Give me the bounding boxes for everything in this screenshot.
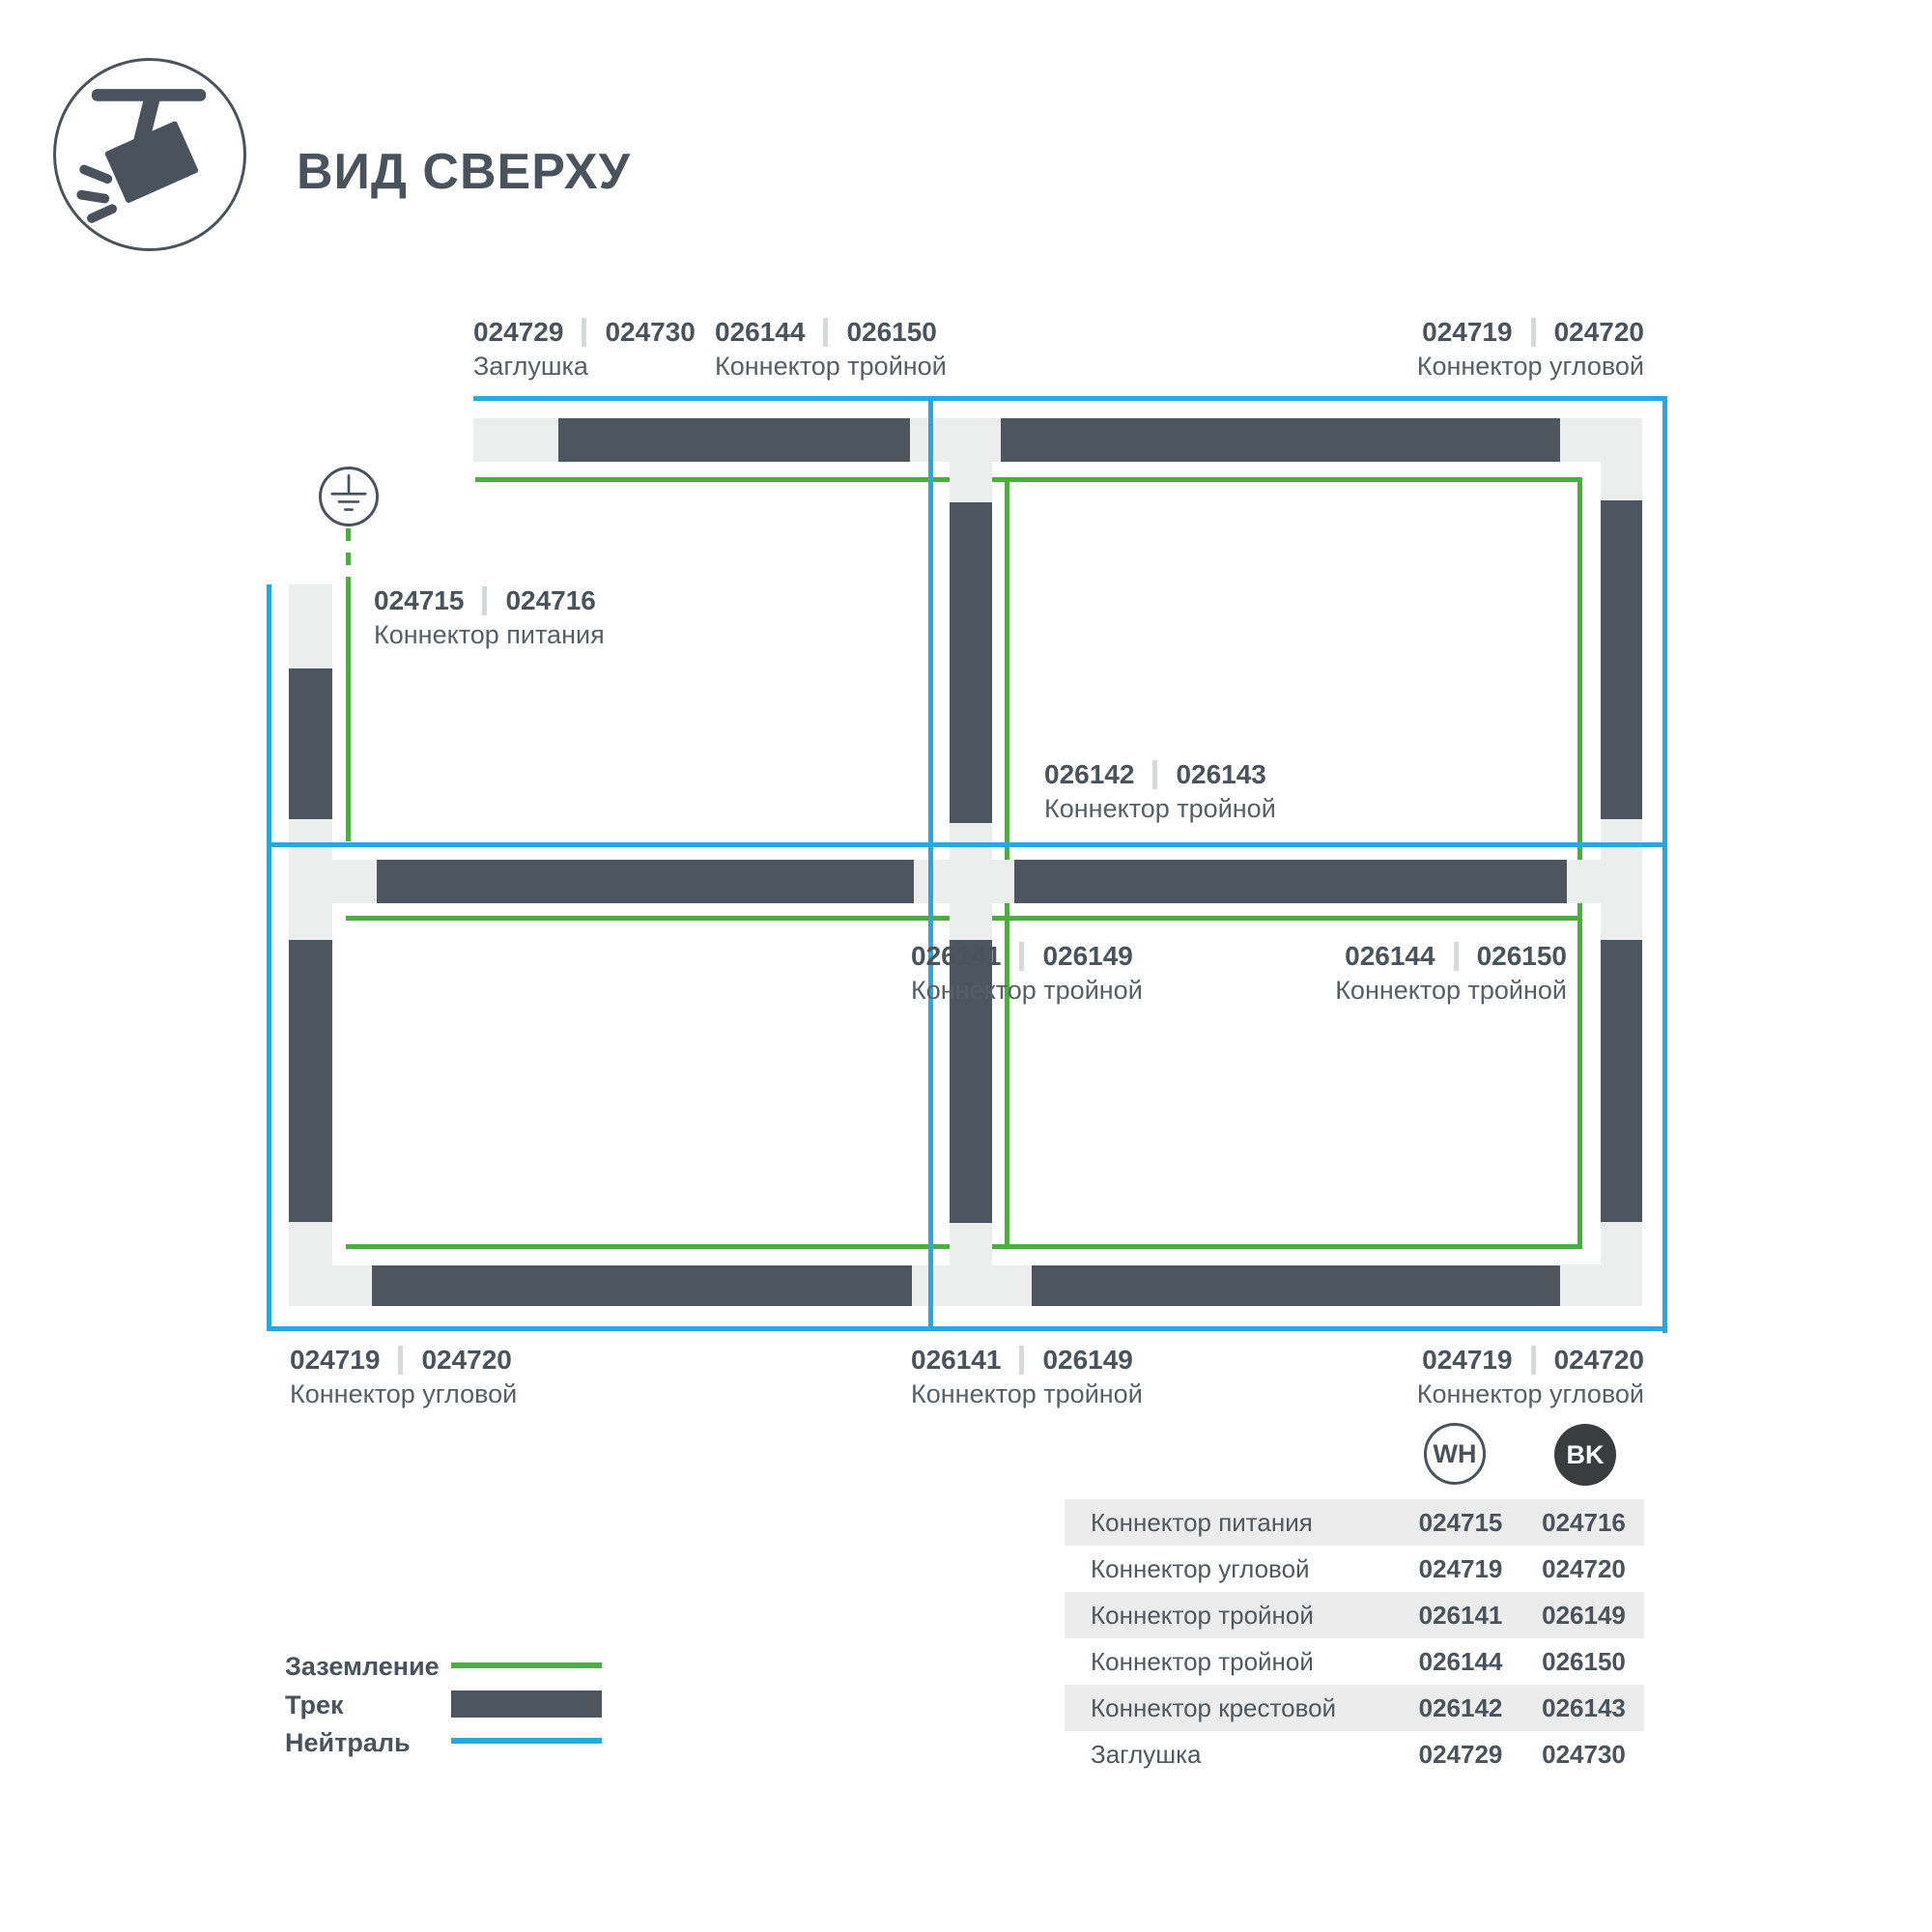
connector-endcap-top xyxy=(473,418,558,462)
track-mid-right xyxy=(1014,860,1567,903)
label-separator xyxy=(1531,318,1536,347)
track-bar-swatch xyxy=(451,1690,602,1718)
connector-tee-right-stem xyxy=(1567,860,1601,903)
connector-tee-top-bar xyxy=(910,418,1001,462)
track-spotlight-icon xyxy=(53,58,246,251)
table-row: Коннектор крестовой026142026143 xyxy=(1065,1685,1644,1731)
table-row: Коннектор тройной026141026149 xyxy=(1065,1592,1644,1638)
table-row: Коннектор угловой024719024720 xyxy=(1065,1546,1644,1592)
table-row: Заглушка024729024730 xyxy=(1065,1731,1644,1777)
articles-table: Коннектор питания024715024716 Коннектор … xyxy=(1065,1499,1644,1777)
label-triple-bottom: 026141026149 Коннектор тройной xyxy=(911,1345,1143,1408)
label-endcap-top: 024729024730 Заглушка xyxy=(473,317,696,381)
track-bottom-left xyxy=(372,1265,912,1306)
label-corner-bottom-left: 024719024720 Коннектор угловой xyxy=(290,1345,517,1408)
label-separator xyxy=(1019,942,1024,971)
label-power-feed: 024715024716 Коннектор питания xyxy=(374,585,605,649)
badge-black: BK xyxy=(1554,1424,1616,1486)
track-bottom-right xyxy=(1032,1265,1560,1306)
connector-tee-left-stem xyxy=(332,860,377,903)
ground-icon xyxy=(319,467,379,526)
label-separator xyxy=(1531,1346,1536,1375)
label-separator xyxy=(823,318,828,347)
label-triple-cell-left: 026141026149 Коннектор тройной xyxy=(911,941,1143,1005)
connector-corner-tr-h xyxy=(1560,418,1642,462)
label-separator xyxy=(1019,1346,1024,1375)
track-left-upper xyxy=(289,668,332,819)
legend-label-ground: Заземление xyxy=(285,1652,440,1682)
track-right-lower xyxy=(1601,940,1642,1222)
label-separator xyxy=(398,1346,403,1375)
neutral-line-right xyxy=(1662,396,1667,1333)
track-spotlight-glyph xyxy=(56,61,243,248)
page-title: ВИД СВЕРХУ xyxy=(297,143,631,201)
connector-corner-br-v xyxy=(1601,1222,1642,1264)
connector-tee-right-v xyxy=(1601,819,1642,940)
label-triple-top: 026144026150 Коннектор тройной xyxy=(715,317,947,381)
neutral-line-left xyxy=(267,584,271,1331)
track-mid-left xyxy=(377,860,914,903)
label-separator xyxy=(1152,760,1157,789)
ground-line-left-v xyxy=(346,580,351,841)
legend-label-neutral: Нейтраль xyxy=(285,1728,411,1758)
connector-cross-stem xyxy=(950,823,992,940)
connector-power-feed xyxy=(289,584,332,668)
connector-tee-left-v xyxy=(289,819,332,940)
table-row: Коннектор тройной026144026150 xyxy=(1065,1638,1644,1685)
track-center-upper xyxy=(950,502,992,823)
track-right-upper xyxy=(1601,500,1642,819)
neutral-line-top xyxy=(473,396,1667,401)
label-corner-bottom-right: 024719024720 Коннектор угловой xyxy=(1417,1345,1644,1408)
neutral-line-bottom xyxy=(267,1326,1667,1331)
label-corner-top-right: 024719024720 Коннектор угловой xyxy=(1417,317,1644,381)
ground-line-top xyxy=(475,477,1579,482)
connector-tee-top-stem xyxy=(950,462,992,502)
connector-corner-tr-v xyxy=(1601,462,1642,500)
neutral-line-middle xyxy=(267,842,1667,847)
label-separator xyxy=(582,318,586,347)
connector-corner-br-h xyxy=(1560,1264,1642,1306)
label-separator xyxy=(482,586,487,615)
ground-dashed-line xyxy=(346,528,351,580)
track-top-right xyxy=(1001,418,1560,462)
neutral-line-center-v xyxy=(928,396,933,1331)
label-separator xyxy=(1454,942,1459,971)
legend-label-track: Трек xyxy=(285,1690,344,1720)
label-triple-cell-right: 026144026150 Коннектор тройной xyxy=(1335,941,1567,1005)
connector-corner-bl-h xyxy=(289,1265,372,1306)
table-row: Коннектор питания024715024716 xyxy=(1065,1499,1644,1546)
track-left-lower xyxy=(289,940,332,1222)
label-cross-center: 026142026143 Коннектор тройной xyxy=(1044,759,1276,823)
neutral-line-swatch xyxy=(451,1738,602,1744)
ground-line-swatch xyxy=(451,1662,602,1668)
track-top-left xyxy=(558,418,910,462)
page: ВИД СВЕРХУ xyxy=(0,0,1932,1932)
connector-tee-bottom-stem xyxy=(950,1223,992,1265)
badge-white: WH xyxy=(1424,1423,1486,1485)
